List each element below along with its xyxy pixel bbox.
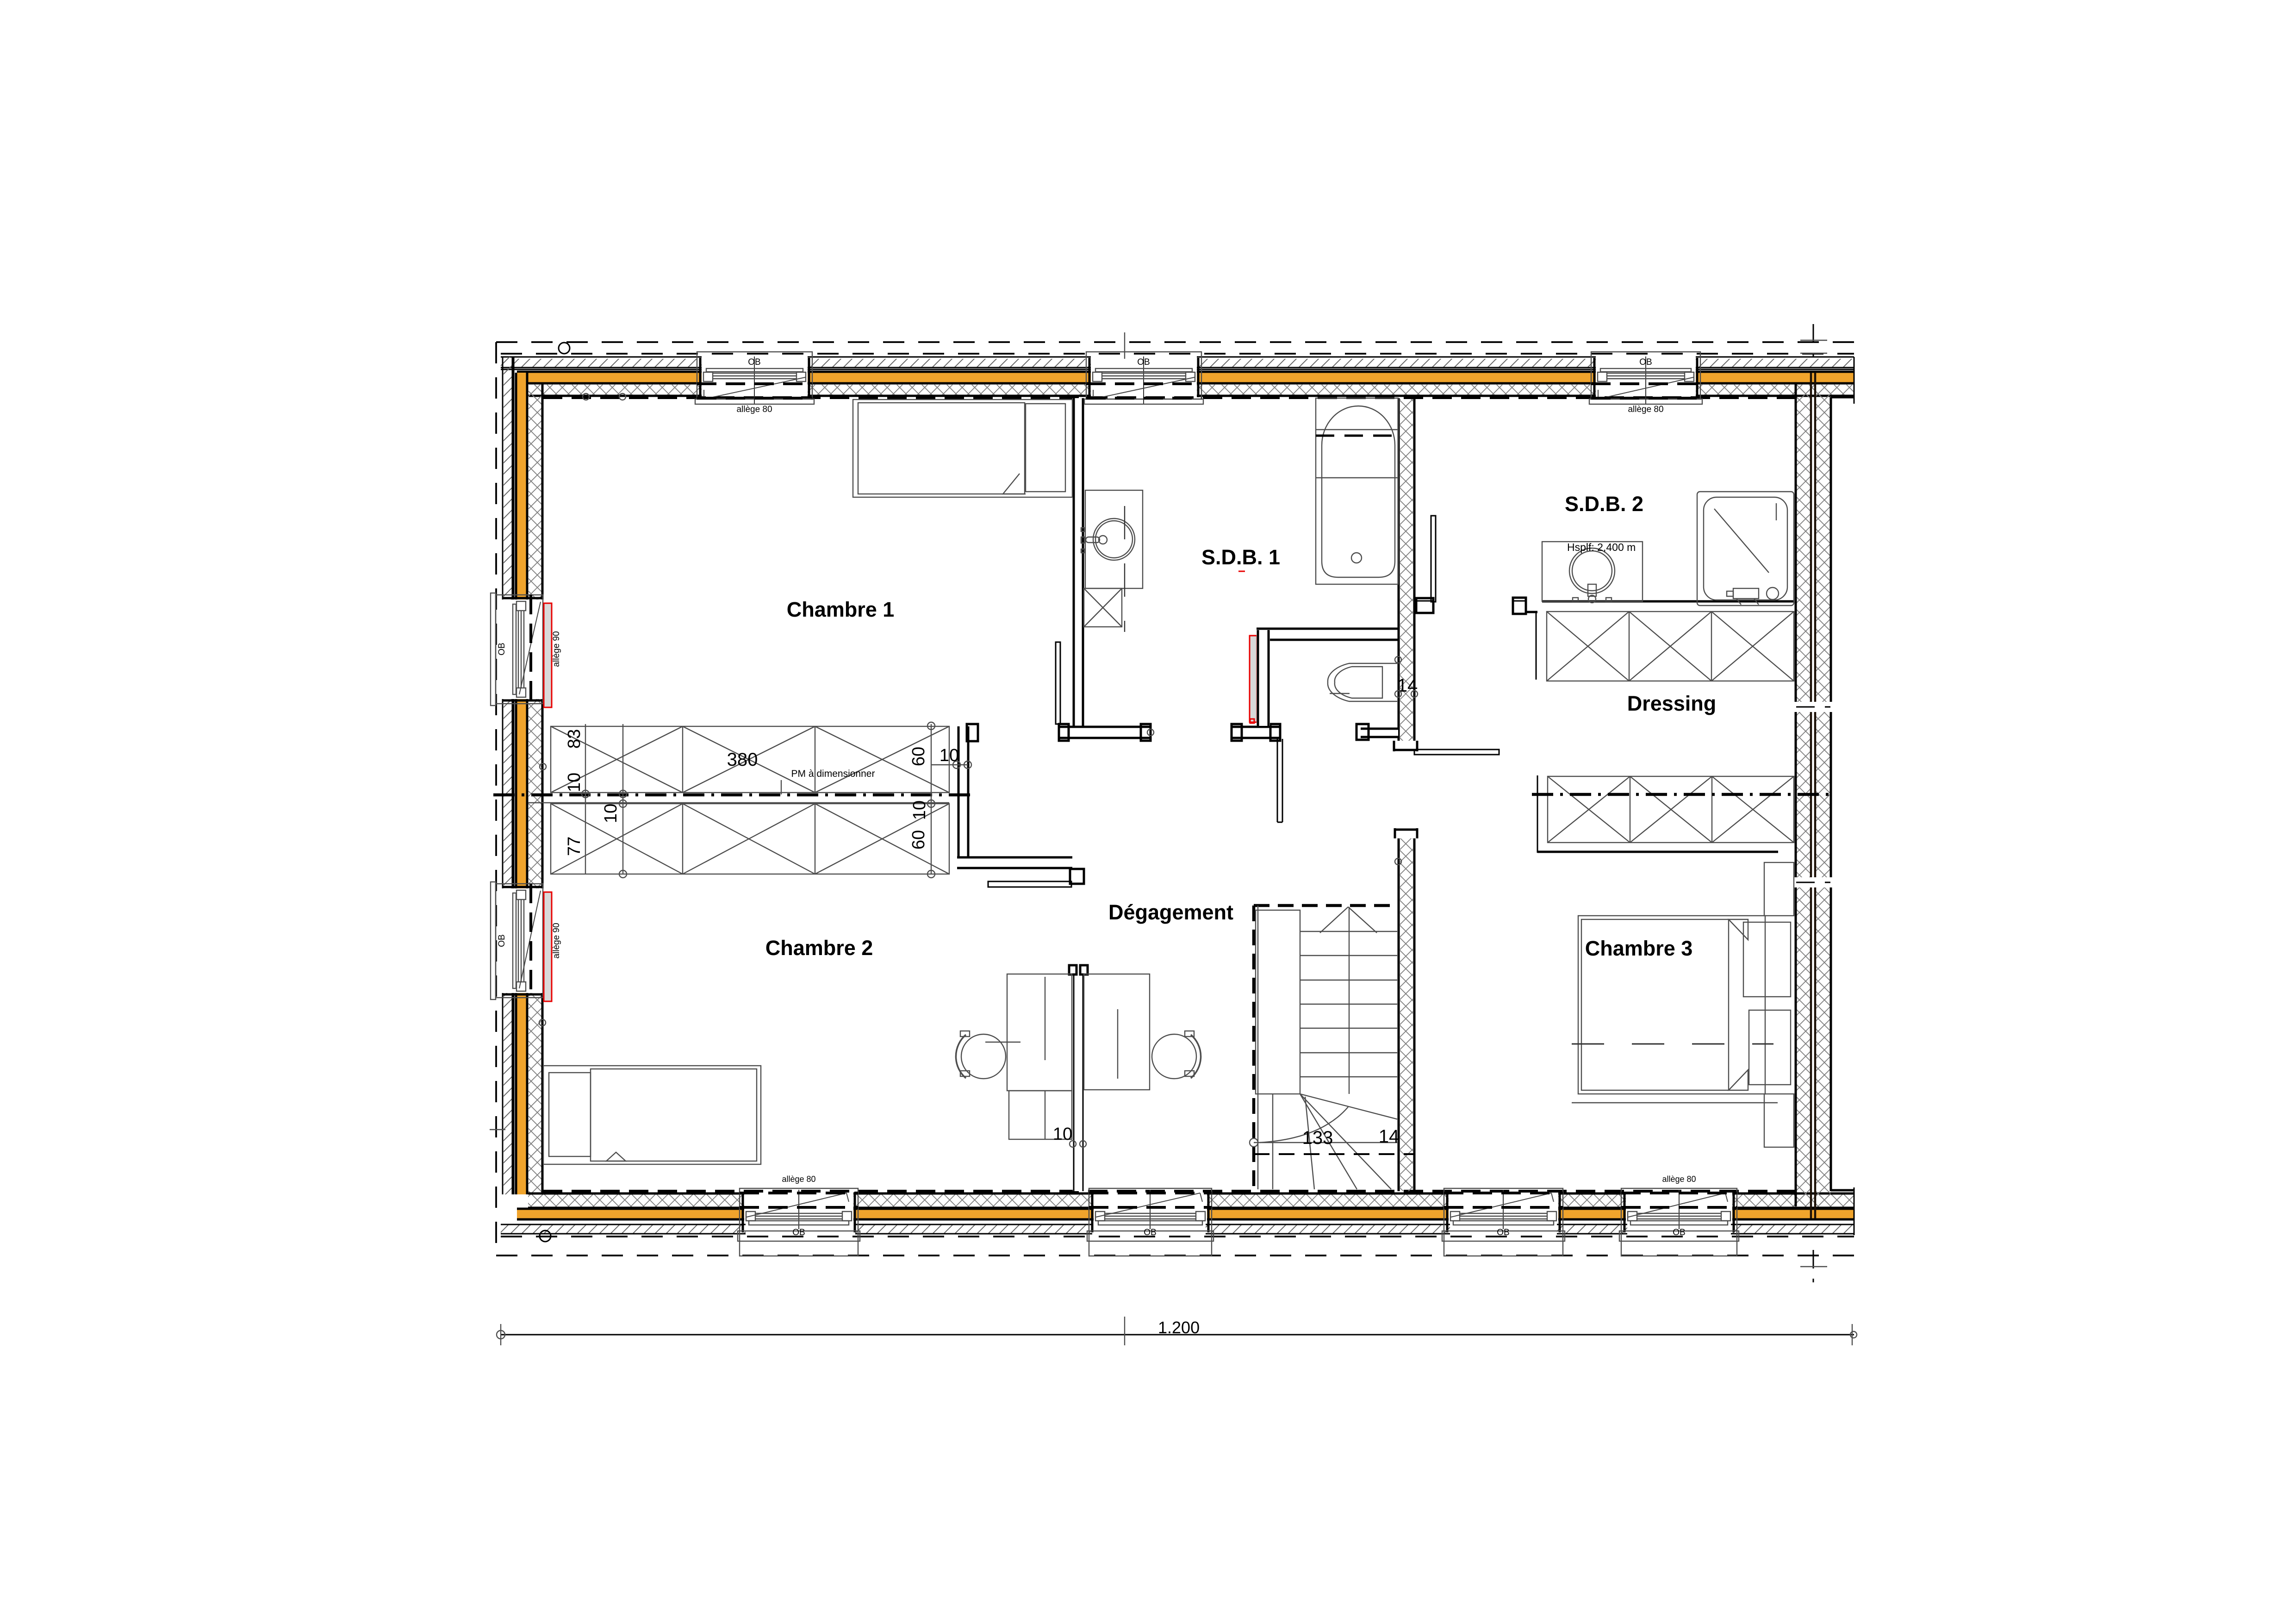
svg-text:10: 10: [565, 773, 584, 792]
svg-text:PM à dimensionner: PM à dimensionner: [791, 768, 875, 779]
svg-text:OB: OB: [1144, 1228, 1156, 1237]
svg-text:Chambre 2: Chambre 2: [765, 936, 873, 960]
svg-text:S.D.B. 1: S.D.B. 1: [1201, 545, 1280, 569]
svg-text:14: 14: [1379, 1126, 1400, 1147]
svg-text:10: 10: [1053, 1124, 1072, 1144]
svg-text:OB: OB: [1673, 1228, 1685, 1237]
svg-text:Hsplf: 2,400 m: Hsplf: 2,400 m: [1567, 541, 1636, 553]
svg-text:77: 77: [565, 837, 584, 856]
svg-text:allège 90: allège 90: [552, 631, 561, 667]
svg-text:OB: OB: [1639, 357, 1652, 367]
svg-text:OB: OB: [792, 1228, 805, 1237]
svg-text:380: 380: [727, 750, 758, 770]
svg-text:OB: OB: [497, 934, 507, 947]
svg-text:allège 80: allège 80: [1628, 405, 1663, 414]
svg-text:Dressing: Dressing: [1627, 692, 1717, 715]
svg-text:Dégagement: Dégagement: [1108, 900, 1233, 924]
svg-text:Chambre 1: Chambre 1: [787, 598, 895, 621]
svg-text:Chambre 3: Chambre 3: [1585, 937, 1693, 960]
svg-text:allège 80: allège 80: [782, 1174, 815, 1184]
svg-text:allège 90: allège 90: [552, 923, 561, 958]
svg-text:1.200: 1.200: [1158, 1318, 1200, 1337]
svg-text:OB: OB: [1137, 357, 1150, 367]
svg-text:14: 14: [1397, 675, 1418, 696]
svg-text:10: 10: [940, 746, 959, 765]
svg-text:OB: OB: [497, 643, 507, 655]
svg-text:10: 10: [910, 800, 929, 820]
svg-text:allège 80: allège 80: [736, 405, 772, 414]
svg-text:OB: OB: [1497, 1228, 1509, 1237]
svg-text:83: 83: [565, 729, 584, 749]
svg-text:OB: OB: [748, 357, 760, 367]
svg-text:60: 60: [909, 830, 928, 849]
svg-text:60: 60: [909, 747, 928, 766]
svg-text:10: 10: [601, 804, 621, 823]
svg-text:allège 80: allège 80: [1662, 1174, 1696, 1184]
svg-text:133: 133: [1302, 1128, 1333, 1148]
svg-text:S.D.B. 2: S.D.B. 2: [1565, 492, 1643, 516]
